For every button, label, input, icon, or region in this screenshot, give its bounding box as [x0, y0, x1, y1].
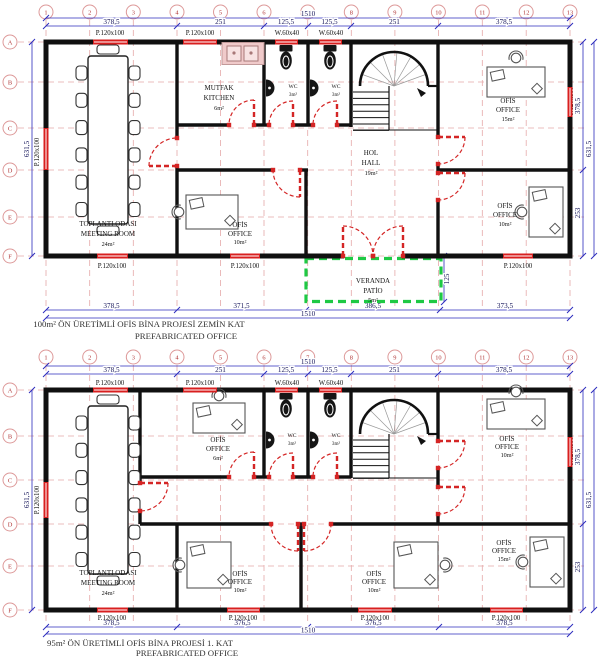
chair	[129, 443, 140, 457]
stairs-spoke	[382, 54, 394, 86]
chair	[518, 557, 528, 567]
door-swing	[313, 101, 337, 125]
door-jamb	[227, 475, 231, 479]
window-label: P.120x100	[96, 380, 125, 387]
window-label: W.60x40	[319, 380, 344, 387]
door-jamb	[436, 162, 440, 166]
dim-label: 631,5	[585, 492, 593, 509]
room-label: OFİS	[500, 97, 515, 105]
sink-drain	[249, 51, 252, 54]
grid-bubble-label: A	[8, 387, 13, 394]
room-label: OFFICE	[495, 443, 519, 451]
door-jamb	[291, 475, 295, 479]
door-jamb	[436, 485, 440, 489]
room-label: 19m²	[365, 170, 378, 177]
door-jamb	[371, 254, 375, 258]
stairs-spoke	[394, 52, 397, 86]
grid-bubble-label: A	[8, 39, 13, 46]
stairs-rail	[360, 52, 428, 86]
door-jamb	[329, 522, 333, 526]
door-jamb	[298, 168, 302, 172]
room-label: 3m²	[288, 441, 297, 447]
dim-label: 378,5	[103, 18, 120, 26]
chair	[76, 471, 87, 485]
door-jamb	[311, 475, 315, 479]
room-label: OFFICE	[493, 211, 517, 219]
room-label: OFFICE	[496, 106, 520, 114]
room-label: WC	[331, 433, 340, 439]
room-label: HALL	[362, 159, 381, 167]
room-label: OFFICE	[228, 578, 252, 586]
grid-bubble-label: 5	[219, 9, 222, 16]
plan-caption: PREFABRICATED OFFICE	[136, 648, 238, 658]
dim-label: 378,5	[496, 366, 513, 374]
chair	[129, 148, 140, 162]
window-label: P.120x100	[34, 485, 41, 514]
window-label: P.120x100	[98, 615, 127, 622]
grid-bubble-label: 2	[88, 9, 91, 16]
dim-label: 251	[389, 18, 400, 26]
dim-label: 378,5	[103, 366, 120, 374]
room-label: OFİS	[366, 570, 381, 578]
stairs-spoke	[382, 402, 394, 434]
room-label: WC	[331, 84, 340, 90]
door-swing	[229, 100, 254, 125]
meeting-table	[88, 406, 128, 574]
chair	[76, 498, 87, 512]
dim-label: 251	[215, 18, 226, 26]
chair	[76, 121, 87, 135]
chair	[76, 416, 87, 430]
grid-bubble-label: 11	[479, 354, 485, 361]
door-jamb	[335, 123, 339, 127]
room-label: OFİS	[210, 436, 225, 444]
door-jamb	[271, 168, 275, 172]
room-label: MUTFAK	[204, 84, 233, 92]
sink-drain	[232, 51, 235, 54]
grid-bubble-label: C	[8, 477, 12, 484]
plan-caption: PREFABRICATED OFFICE	[135, 331, 237, 341]
window-label: P.120x100	[98, 263, 127, 270]
dim-label: 1510	[301, 627, 316, 635]
window-label: P.120x100	[492, 615, 521, 622]
room-label: 10m²	[368, 587, 381, 594]
chair	[129, 121, 140, 135]
room-label: 3m²	[289, 92, 298, 98]
grid-bubble-label: 6	[262, 9, 265, 16]
grid-bubble-label: 13	[567, 354, 573, 361]
grid-bubble-label: 3	[132, 354, 135, 361]
dim-label: 378,5	[103, 302, 120, 310]
room-label: OFFICE	[492, 547, 516, 555]
stairs-spoke	[394, 74, 426, 86]
chair	[129, 93, 140, 107]
grid-bubble-label: 10	[435, 9, 441, 16]
window-label: W.60x40	[319, 30, 344, 37]
door-swing	[313, 453, 337, 477]
chair	[517, 207, 527, 217]
window-label: P.120x100	[34, 137, 41, 166]
room-label: OFİS	[232, 221, 247, 229]
chair	[76, 443, 87, 457]
door-jamb	[227, 123, 231, 127]
door-jamb	[436, 466, 440, 470]
chair	[129, 175, 140, 189]
room-label: 15m²	[502, 116, 515, 123]
chair	[76, 148, 87, 162]
dim-label: 253	[574, 207, 582, 218]
grid-bubble-label: 8	[350, 9, 353, 16]
toilet-tank	[280, 393, 293, 400]
grid-bubble-label: D	[8, 521, 13, 528]
toilet-tank	[324, 393, 337, 400]
door-jamb	[436, 439, 440, 443]
stairs-spoke	[394, 400, 397, 434]
window-label: P.120x100	[96, 30, 125, 37]
chair	[76, 175, 87, 189]
chair	[129, 203, 140, 217]
door-jamb	[252, 475, 256, 479]
stairs-spoke	[362, 422, 394, 434]
room-label: OFFICE	[228, 230, 252, 238]
door-swing	[140, 483, 168, 511]
door-swing	[343, 226, 373, 256]
dim-label: 631,5	[23, 141, 31, 158]
stairs-arrow	[417, 88, 426, 97]
plan-ground-floor: 12345678910111213ABCDEF1510378,5251125,5…	[3, 5, 597, 341]
chair	[214, 391, 224, 401]
stairs-spoke	[394, 57, 411, 86]
dim-label: 1510	[301, 358, 316, 366]
room-label: OFİS	[499, 435, 514, 443]
chair	[76, 93, 87, 107]
room-label: HOL	[364, 149, 378, 157]
dim-label: 378,5	[574, 449, 582, 466]
grid-bubble-label: 9	[393, 9, 396, 16]
toilet-tank	[324, 45, 337, 52]
door-jamb	[138, 509, 142, 513]
grid-bubble-label: B	[8, 79, 12, 86]
door-jamb	[311, 123, 315, 127]
chair	[129, 553, 140, 567]
room-label: 10m²	[499, 221, 512, 228]
room-label: 24m²	[102, 590, 115, 597]
dim-label: 378,5	[574, 98, 582, 115]
grid-bubble-label: E	[8, 563, 12, 570]
window-label: W.60x40	[275, 380, 300, 387]
room-label: WC	[288, 84, 297, 90]
dim-label: 371,5	[233, 302, 250, 310]
door-jamb	[175, 136, 179, 140]
stairs-arrow	[417, 436, 426, 445]
room-label: 24m²	[102, 241, 115, 248]
grid-bubble-label: 1	[44, 9, 47, 16]
door-swing	[438, 487, 465, 514]
room-label: MEETING ROOM	[81, 579, 136, 587]
grid-bubble-label: 1	[44, 354, 47, 361]
room-label: OFFICE	[206, 445, 230, 453]
room-label: 5m²	[368, 297, 378, 304]
dim-label: 253	[574, 561, 582, 572]
grid-bubble-label: 11	[479, 9, 485, 16]
sink-drain	[268, 439, 271, 442]
dim-label: 631,5	[585, 141, 593, 158]
room-label: 3m²	[332, 441, 341, 447]
grid-bubble-label: D	[8, 167, 13, 174]
chair	[175, 560, 185, 570]
grid-bubble-label: 10	[435, 354, 441, 361]
door-jamb	[267, 475, 271, 479]
room-label: 15m²	[498, 556, 511, 563]
dim-label: 373,5	[497, 302, 514, 310]
dim-label: 125,5	[321, 366, 338, 374]
meeting-table	[88, 56, 128, 224]
room-label: MEETING ROOM	[81, 230, 136, 238]
grid-bubble-label: E	[8, 214, 12, 221]
door-swing	[273, 170, 300, 197]
room-label: KITCHEN	[204, 94, 235, 102]
door-swing	[229, 452, 254, 477]
stairs-spoke	[394, 405, 411, 434]
chair	[129, 525, 140, 539]
dim-label: 378,5	[496, 18, 513, 26]
dim-label: 125,5	[321, 18, 338, 26]
dim-label: 125	[443, 273, 451, 284]
chair	[76, 203, 87, 217]
door-jamb	[335, 475, 339, 479]
grid-bubble-label: 12	[523, 354, 529, 361]
door-swing	[149, 138, 177, 166]
chair	[97, 45, 119, 54]
plan-caption: 95m² ÖN ÜRETİMLİ OFİS BİNA PROJESİ 1. KA…	[47, 638, 234, 648]
grid-bubble-label: C	[8, 125, 12, 132]
door-jamb	[302, 522, 306, 526]
chair	[97, 395, 119, 404]
floor-plan-sheet: 12345678910111213ABCDEF1510378,5251125,5…	[0, 0, 600, 658]
door-swing	[269, 453, 293, 477]
grid-bubble-label: 6	[262, 354, 265, 361]
room-label: WC	[287, 433, 296, 439]
room-label: OFİS	[496, 539, 511, 547]
grid-bubble-label: F	[8, 607, 12, 614]
stairs-rail	[360, 400, 428, 434]
chair	[511, 387, 521, 397]
room-label: OFİS	[232, 570, 247, 578]
door-swing	[373, 226, 403, 256]
room-label: 3m²	[332, 92, 341, 98]
chair	[511, 53, 521, 63]
grid-bubble-label: 5	[219, 354, 222, 361]
door-jamb	[291, 123, 295, 127]
door-jamb	[138, 481, 142, 485]
door-jamb	[401, 254, 405, 258]
room-label: PATİO	[363, 287, 382, 295]
door-jamb	[296, 522, 300, 526]
plan-caption: 100m² ÖN ÜRETİMLİ OFİS BİNA PROJESİ ZEMİ…	[33, 319, 245, 329]
chair	[76, 66, 87, 80]
door-jamb	[436, 198, 440, 202]
stairs-spoke	[370, 410, 394, 434]
grid-bubble-label: F	[8, 253, 12, 260]
room-label: 10m²	[501, 452, 514, 459]
window-label: P.120x100	[361, 615, 390, 622]
dim-label: 125,5	[278, 18, 295, 26]
toilet-tank	[280, 45, 293, 52]
door-jamb	[341, 254, 345, 258]
window-label: P.120x100	[186, 380, 215, 387]
chair	[174, 207, 184, 217]
stairs-spoke	[394, 422, 426, 434]
grid-bubble-label: 12	[523, 9, 529, 16]
chair	[129, 66, 140, 80]
dim-label: 251	[389, 366, 400, 374]
dim-label: 251	[215, 366, 226, 374]
window-label: P.120x100	[504, 263, 533, 270]
stairs-spoke	[394, 64, 420, 86]
chair	[76, 553, 87, 567]
window-label: P.120x100	[229, 615, 258, 622]
door-swing	[269, 101, 293, 125]
door-jamb	[252, 123, 256, 127]
room-label: OFİS	[497, 202, 512, 210]
door-jamb	[175, 164, 179, 168]
chair	[76, 525, 87, 539]
room-label: 10m²	[234, 587, 247, 594]
dim-label: 1510	[301, 10, 316, 18]
door-swing	[271, 524, 298, 551]
grid-bubble-label: 8	[350, 354, 353, 361]
floor-plan-drawing: 12345678910111213ABCDEF1510378,5251125,5…	[0, 0, 600, 658]
door-jamb	[269, 522, 273, 526]
room-label: OFFICE	[362, 578, 386, 586]
door-swing	[438, 441, 465, 468]
room-label: TOPLANTI ODASI	[79, 220, 137, 228]
stairs-spoke	[362, 74, 394, 86]
stairs-spoke	[394, 412, 420, 434]
sink-drain	[268, 87, 271, 90]
grid-bubble-label: 2	[88, 354, 91, 361]
window-label: W.60x40	[275, 30, 300, 37]
door-jamb	[436, 171, 440, 175]
sink-drain	[312, 87, 315, 90]
chair	[129, 416, 140, 430]
sink-drain	[312, 439, 315, 442]
plan-first-floor: 12345678910111213ABCDEF1510378,5251125,5…	[3, 350, 597, 658]
dim-label: 125,5	[278, 366, 295, 374]
chair	[440, 560, 450, 570]
door-jamb	[436, 135, 440, 139]
dim-label: 1510	[301, 310, 316, 318]
grid-bubble-label: 3	[132, 9, 135, 16]
room-label: 10m²	[234, 239, 247, 246]
door-swing	[438, 173, 465, 200]
door-jamb	[267, 123, 271, 127]
dim-label: 631,5	[23, 492, 31, 509]
grid-bubble-label: 9	[393, 354, 396, 361]
door-jamb	[436, 512, 440, 516]
room-label: TOPLANTI ODASI	[79, 569, 137, 577]
window-label: P.120x100	[231, 263, 260, 270]
grid-bubble-label: B	[8, 433, 12, 440]
room-label: VERANDA	[356, 277, 390, 285]
room-label: 6m²	[213, 455, 223, 462]
room-label: 6m²	[214, 105, 224, 112]
window-label: P.120x100	[186, 30, 215, 37]
door-swing	[438, 137, 465, 164]
